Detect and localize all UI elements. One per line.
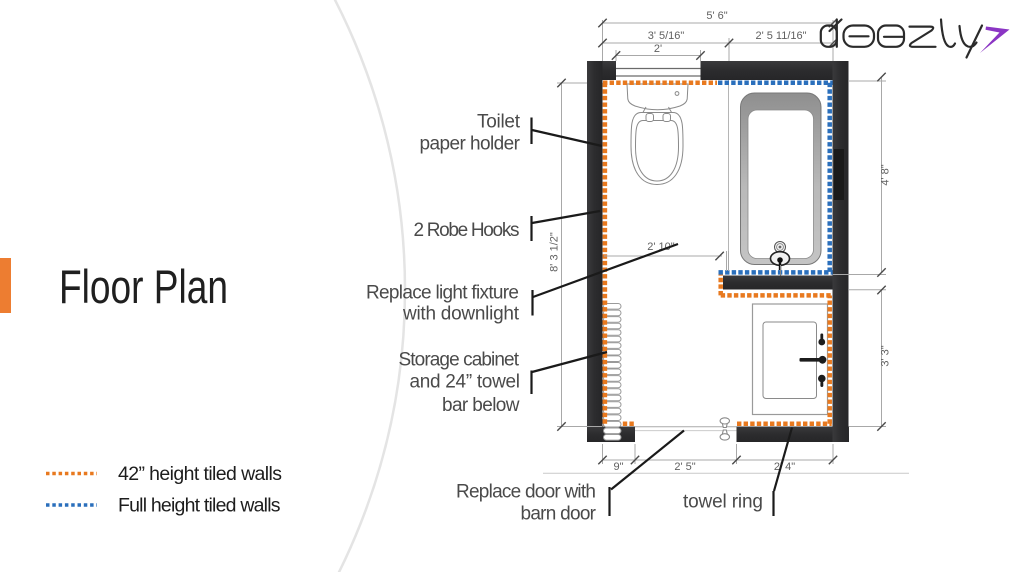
svg-text:2': 2' [654,43,662,55]
svg-text:4' 8": 4' 8" [880,164,892,185]
svg-text:barn door: barn door [521,504,597,525]
svg-text:towel ring: towel ring [683,492,763,513]
svg-text:Floor Plan: Floor Plan [59,260,228,313]
svg-text:2 Robe Hooks: 2 Robe Hooks [414,220,520,241]
svg-text:9": 9" [613,461,623,473]
svg-text:Replace light fixture: Replace light fixture [366,283,519,304]
svg-text:2' 5": 2' 5" [674,461,695,473]
svg-text:5' 6": 5' 6" [706,10,727,22]
svg-text:Storage cabinet: Storage cabinet [399,350,520,371]
svg-text:Replace door with: Replace door with [456,482,596,503]
svg-text:and 24” towel: and 24” towel [410,372,521,393]
svg-text:Toilet: Toilet [477,112,521,133]
svg-text:paper holder: paper holder [420,134,521,155]
svg-text:42” height tiled walls: 42” height tiled walls [118,463,282,485]
svg-text:3' 5/16": 3' 5/16" [648,30,685,42]
svg-text:2' 5 11/16": 2' 5 11/16" [755,30,806,42]
svg-text:3' 3": 3' 3" [880,345,892,366]
svg-text:with downlight: with downlight [402,304,520,325]
svg-text:8' 3 1/2": 8' 3 1/2" [549,232,561,272]
svg-text:Full height tiled walls: Full height tiled walls [118,495,281,517]
svg-text:2' 4": 2' 4" [774,461,795,473]
svg-text:bar below: bar below [442,395,520,416]
